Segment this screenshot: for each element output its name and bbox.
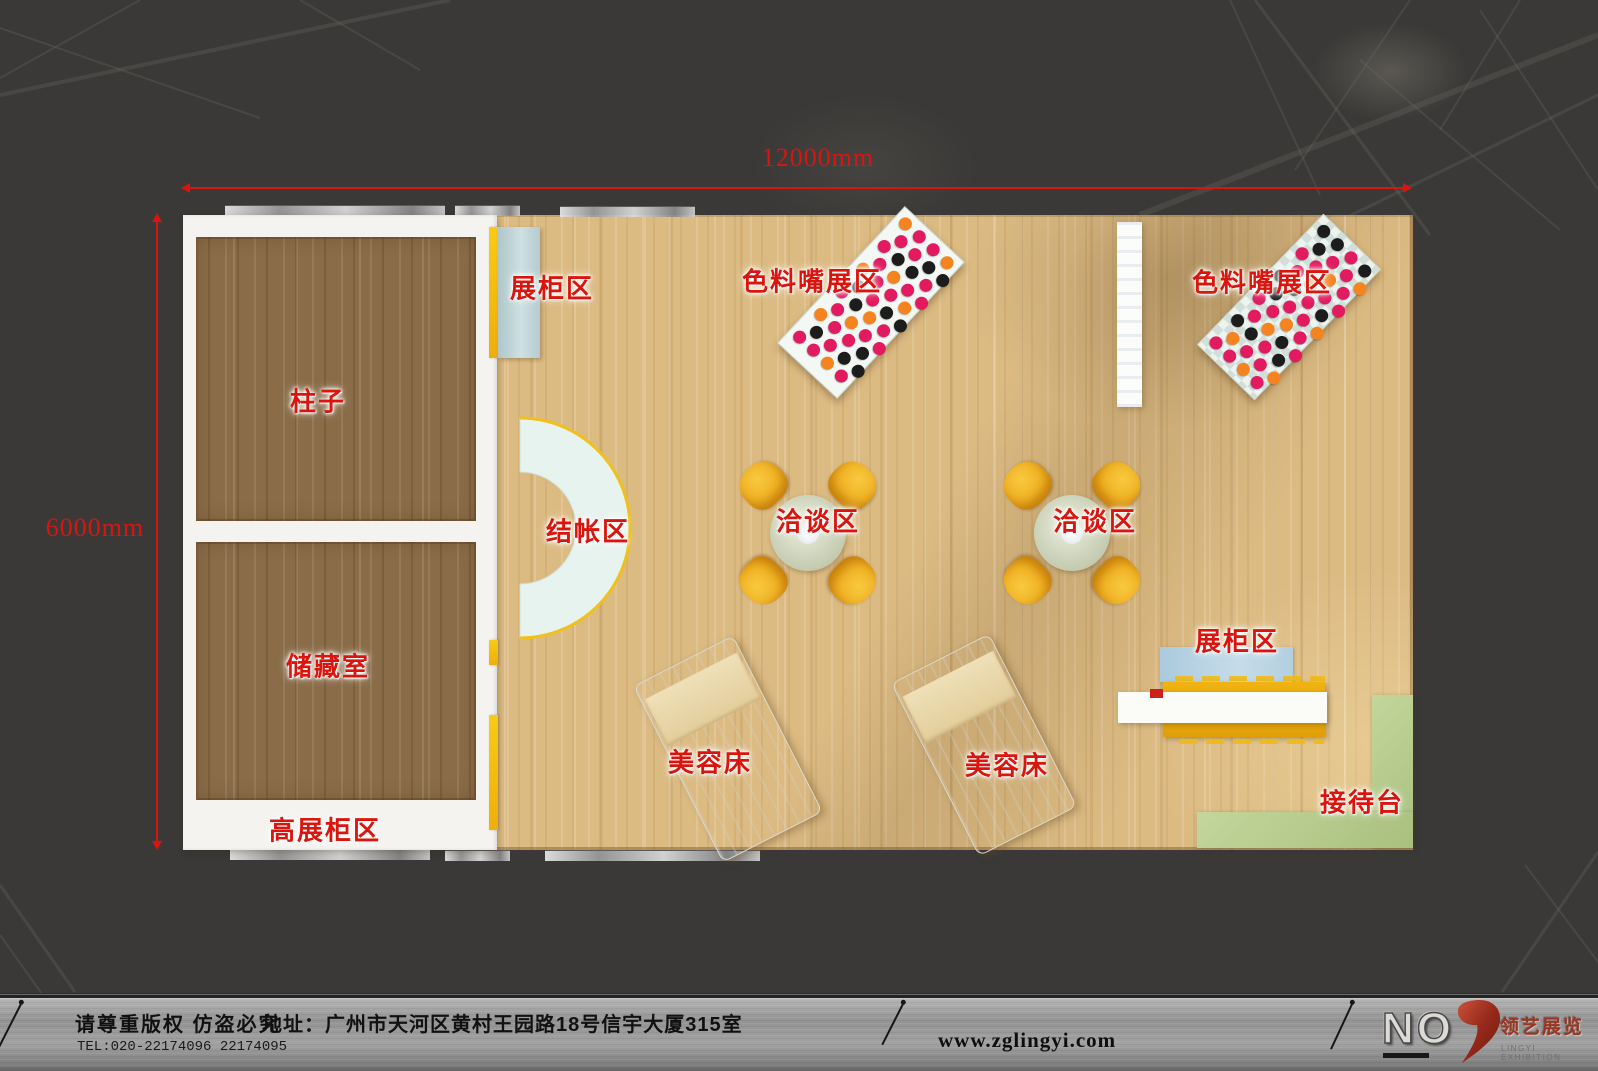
pillar-room bbox=[196, 237, 476, 521]
company-address: 地址：广州市天河区黄村王园路18号信宇大厦315室 bbox=[262, 1008, 743, 1037]
negotiation-left-label: 洽谈区 bbox=[776, 502, 860, 539]
cabinet-dash-trim bbox=[1179, 739, 1324, 744]
wall-yellow-strip bbox=[489, 640, 498, 665]
nozzle-display-left-label: 色料嘴展区 bbox=[742, 262, 882, 299]
beauty-bed-left-label: 美容床 bbox=[668, 743, 752, 780]
cabinet-dash-trim bbox=[1175, 676, 1325, 681]
beauty-bed-right-label: 美容床 bbox=[965, 746, 1049, 783]
logo-no-text: NO bbox=[1382, 1004, 1454, 1054]
checkout-label: 结帐区 bbox=[546, 512, 630, 549]
logo-underline bbox=[1383, 1053, 1429, 1058]
height-dimension-line bbox=[156, 215, 158, 848]
showcase-right-label: 展柜区 bbox=[1195, 622, 1279, 659]
shelf-mark bbox=[230, 849, 430, 860]
website-url: www.zglingyi.com bbox=[938, 1028, 1116, 1053]
logo-comma-icon bbox=[1452, 998, 1504, 1064]
phone-numbers: TEL:020-22174096 22174095 bbox=[77, 1039, 287, 1055]
logo-brand-english: LINGYI EXHIBITION bbox=[1501, 1044, 1598, 1062]
cabinet-red-accent bbox=[1150, 689, 1163, 698]
height-dimension-label: 6000mm bbox=[46, 513, 144, 543]
walled-block bbox=[183, 215, 497, 850]
reception-label: 接待台 bbox=[1320, 783, 1404, 820]
shelf-mark bbox=[445, 850, 510, 861]
booth-floorplan-rendering: 12000mm 6000mm 柱子 储藏室 高展柜区 展柜区 结帐区 bbox=[0, 0, 1598, 1071]
logo-brand-chinese: 领艺展览 bbox=[1500, 1012, 1584, 1039]
showcase-yellow-strip bbox=[489, 227, 498, 358]
showcase-left-label: 展柜区 bbox=[510, 269, 594, 306]
negotiation-right-label: 洽谈区 bbox=[1053, 502, 1137, 539]
floorplan: 柱子 储藏室 高展柜区 展柜区 结帐区 色料嘴展区 色料嘴展区 bbox=[183, 215, 1413, 850]
copyright-notice: 请尊重版权 仿盗必究 bbox=[75, 1008, 281, 1037]
wall-yellow-strip bbox=[489, 715, 498, 830]
pillar-label: 柱子 bbox=[290, 382, 346, 419]
width-dimension-line bbox=[183, 187, 1410, 189]
shelf-mark bbox=[560, 206, 695, 217]
storage-room-label: 储藏室 bbox=[286, 647, 370, 684]
display-panel bbox=[1117, 222, 1142, 407]
tall-showcase-label: 高展柜区 bbox=[269, 811, 381, 848]
width-dimension-label: 12000mm bbox=[762, 143, 874, 173]
nozzle-display-right-label: 色料嘴展区 bbox=[1192, 263, 1332, 300]
